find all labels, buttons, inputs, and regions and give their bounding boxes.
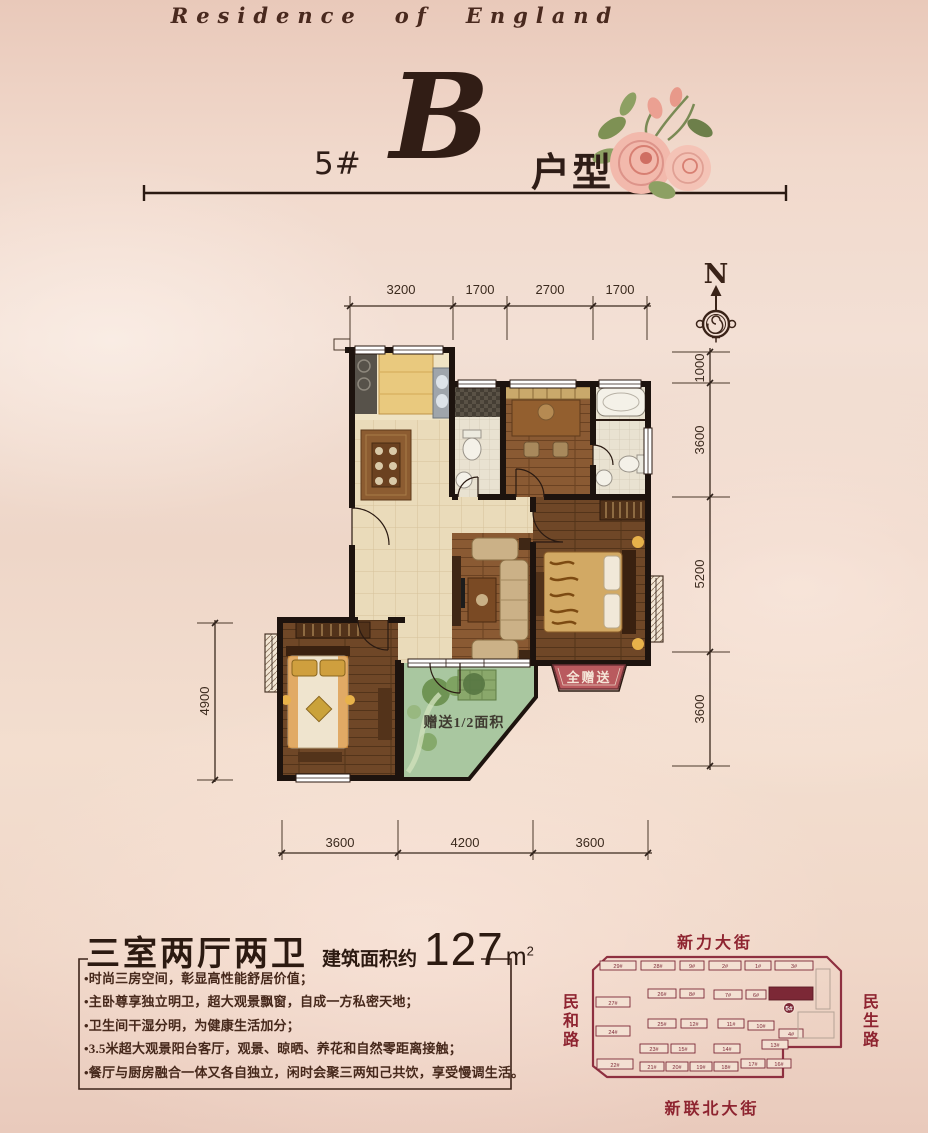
dim-label: 1700 <box>466 282 495 297</box>
dim-label: 4200 <box>451 835 480 850</box>
dimensions-bottom: 3600 4200 3600 <box>278 820 652 860</box>
map-building-label: 13# <box>770 1043 780 1049</box>
map-building-label: 25# <box>657 1022 667 1028</box>
balcony-note: 赠送1/2面积 <box>424 714 505 731</box>
street-name-top: 新力大街 <box>650 929 780 953</box>
dimensions-right: 1000 3600 5200 3600 <box>672 348 730 770</box>
map-building-label: 20# <box>672 1065 682 1071</box>
selling-point: •时尚三房空间，彰显高性能舒居价值； <box>84 967 516 990</box>
map-building-label: 23# <box>649 1047 659 1053</box>
map-building-label: 24# <box>608 1030 618 1036</box>
dim-label: 2700 <box>536 282 565 297</box>
map-building-label: 21# <box>647 1065 657 1071</box>
map-building-label: 18# <box>721 1065 731 1071</box>
brand-title: Residence of England <box>150 3 640 28</box>
map-building <box>769 987 813 1000</box>
compass: N <box>697 259 736 343</box>
map-building-label: 15# <box>678 1047 688 1053</box>
map-building-label: 3# <box>791 964 798 970</box>
map-building-label: 14# <box>722 1047 732 1053</box>
map-building-label: 6# <box>753 993 760 999</box>
selling-point: •主卧尊享独立明卫，超大观景飘窗，自成一方私密天地； <box>84 990 516 1013</box>
site-map: 29#28#9#2#1#3#27#26#8#7#6#24#25#12#11#10… <box>593 957 841 1077</box>
dim-label: 3600 <box>326 835 355 850</box>
dimensions-left: 4900 <box>197 620 233 783</box>
map-building-label: 8# <box>689 992 696 998</box>
map-building-label: 12# <box>689 1022 699 1028</box>
map-building <box>816 969 830 1009</box>
dining-furniture <box>361 430 411 500</box>
map-building-label: 27# <box>608 1001 618 1007</box>
map-building-label: 17# <box>748 1062 758 1068</box>
gift-ribbon: 全赠送 <box>553 665 625 689</box>
block-number: 5# <box>314 146 362 182</box>
dim-label: 5200 <box>692 560 707 589</box>
gift-ribbon-label: 全赠送 <box>565 670 611 685</box>
map-building-label: 7# <box>725 993 732 999</box>
street-name-left: 民和路 <box>556 993 580 1050</box>
map-building-label: 9# <box>689 964 696 970</box>
dim-label: 3200 <box>387 282 416 297</box>
selling-point: •3.5米超大观景阳台客厅，观景、晾晒、养花和自然零距离接触； <box>84 1037 516 1060</box>
unit-type-letter: B <box>390 58 490 176</box>
floorplan-poster: N <box>0 0 928 1133</box>
street-name-bottom: 新联北大街 <box>637 1095 787 1119</box>
map-building-label: 2# <box>722 964 729 970</box>
map-building-label: 29# <box>613 964 623 970</box>
dim-label: 4900 <box>197 687 212 716</box>
map-building-label: 19# <box>696 1065 706 1071</box>
dim-label: 3600 <box>692 426 707 455</box>
dim-label: 3600 <box>576 835 605 850</box>
floor-plan: 全赠送 赠送1/2面积 <box>265 339 663 782</box>
highlight-badge-label: 5# <box>785 1006 793 1013</box>
map-building-label: 26# <box>657 992 667 998</box>
map-building-label: 16# <box>774 1062 784 1068</box>
unit-type-label: 户型 <box>531 142 613 198</box>
dim-label: 3600 <box>692 695 707 724</box>
map-buildings: 29#28#9#2#1#3#27#26#8#7#6#24#25#12#11#10… <box>596 961 834 1071</box>
dim-label: 1000 <box>692 354 707 383</box>
street-name-right: 民生路 <box>856 993 880 1050</box>
selling-point: •卫生间干湿分明，为健康生活加分； <box>84 1014 516 1037</box>
map-building-label: 1# <box>755 964 762 970</box>
map-building-label: 28# <box>653 964 663 970</box>
selling-point: •餐厅与厨房融合一体又各自独立，闲时会聚三两知己共饮，享受慢调生活。 <box>84 1061 516 1084</box>
dimensions-top: 3200 1700 2700 1700 <box>344 282 651 340</box>
dim-label: 1700 <box>606 282 635 297</box>
map-building-label: 22# <box>610 1063 620 1069</box>
selling-points: •时尚三房空间，彰显高性能舒居价值； •主卧尊享独立明卫，超大观景飘窗，自成一方… <box>84 967 516 1084</box>
map-building-label: 11# <box>727 1022 737 1028</box>
map-building-label: 10# <box>756 1024 766 1030</box>
map-building-label: 4# <box>788 1032 795 1038</box>
